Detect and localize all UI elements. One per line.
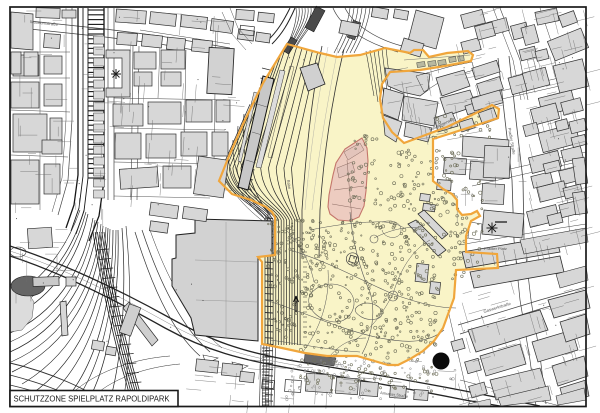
- svg-text:SCHUTZZONE SPIELPLATZ RAPOLDIP: SCHUTZZONE SPIELPLATZ RAPOLDIPARK: [14, 394, 170, 404]
- svg-text:Pradler Platz: Pradler Platz: [484, 246, 507, 251]
